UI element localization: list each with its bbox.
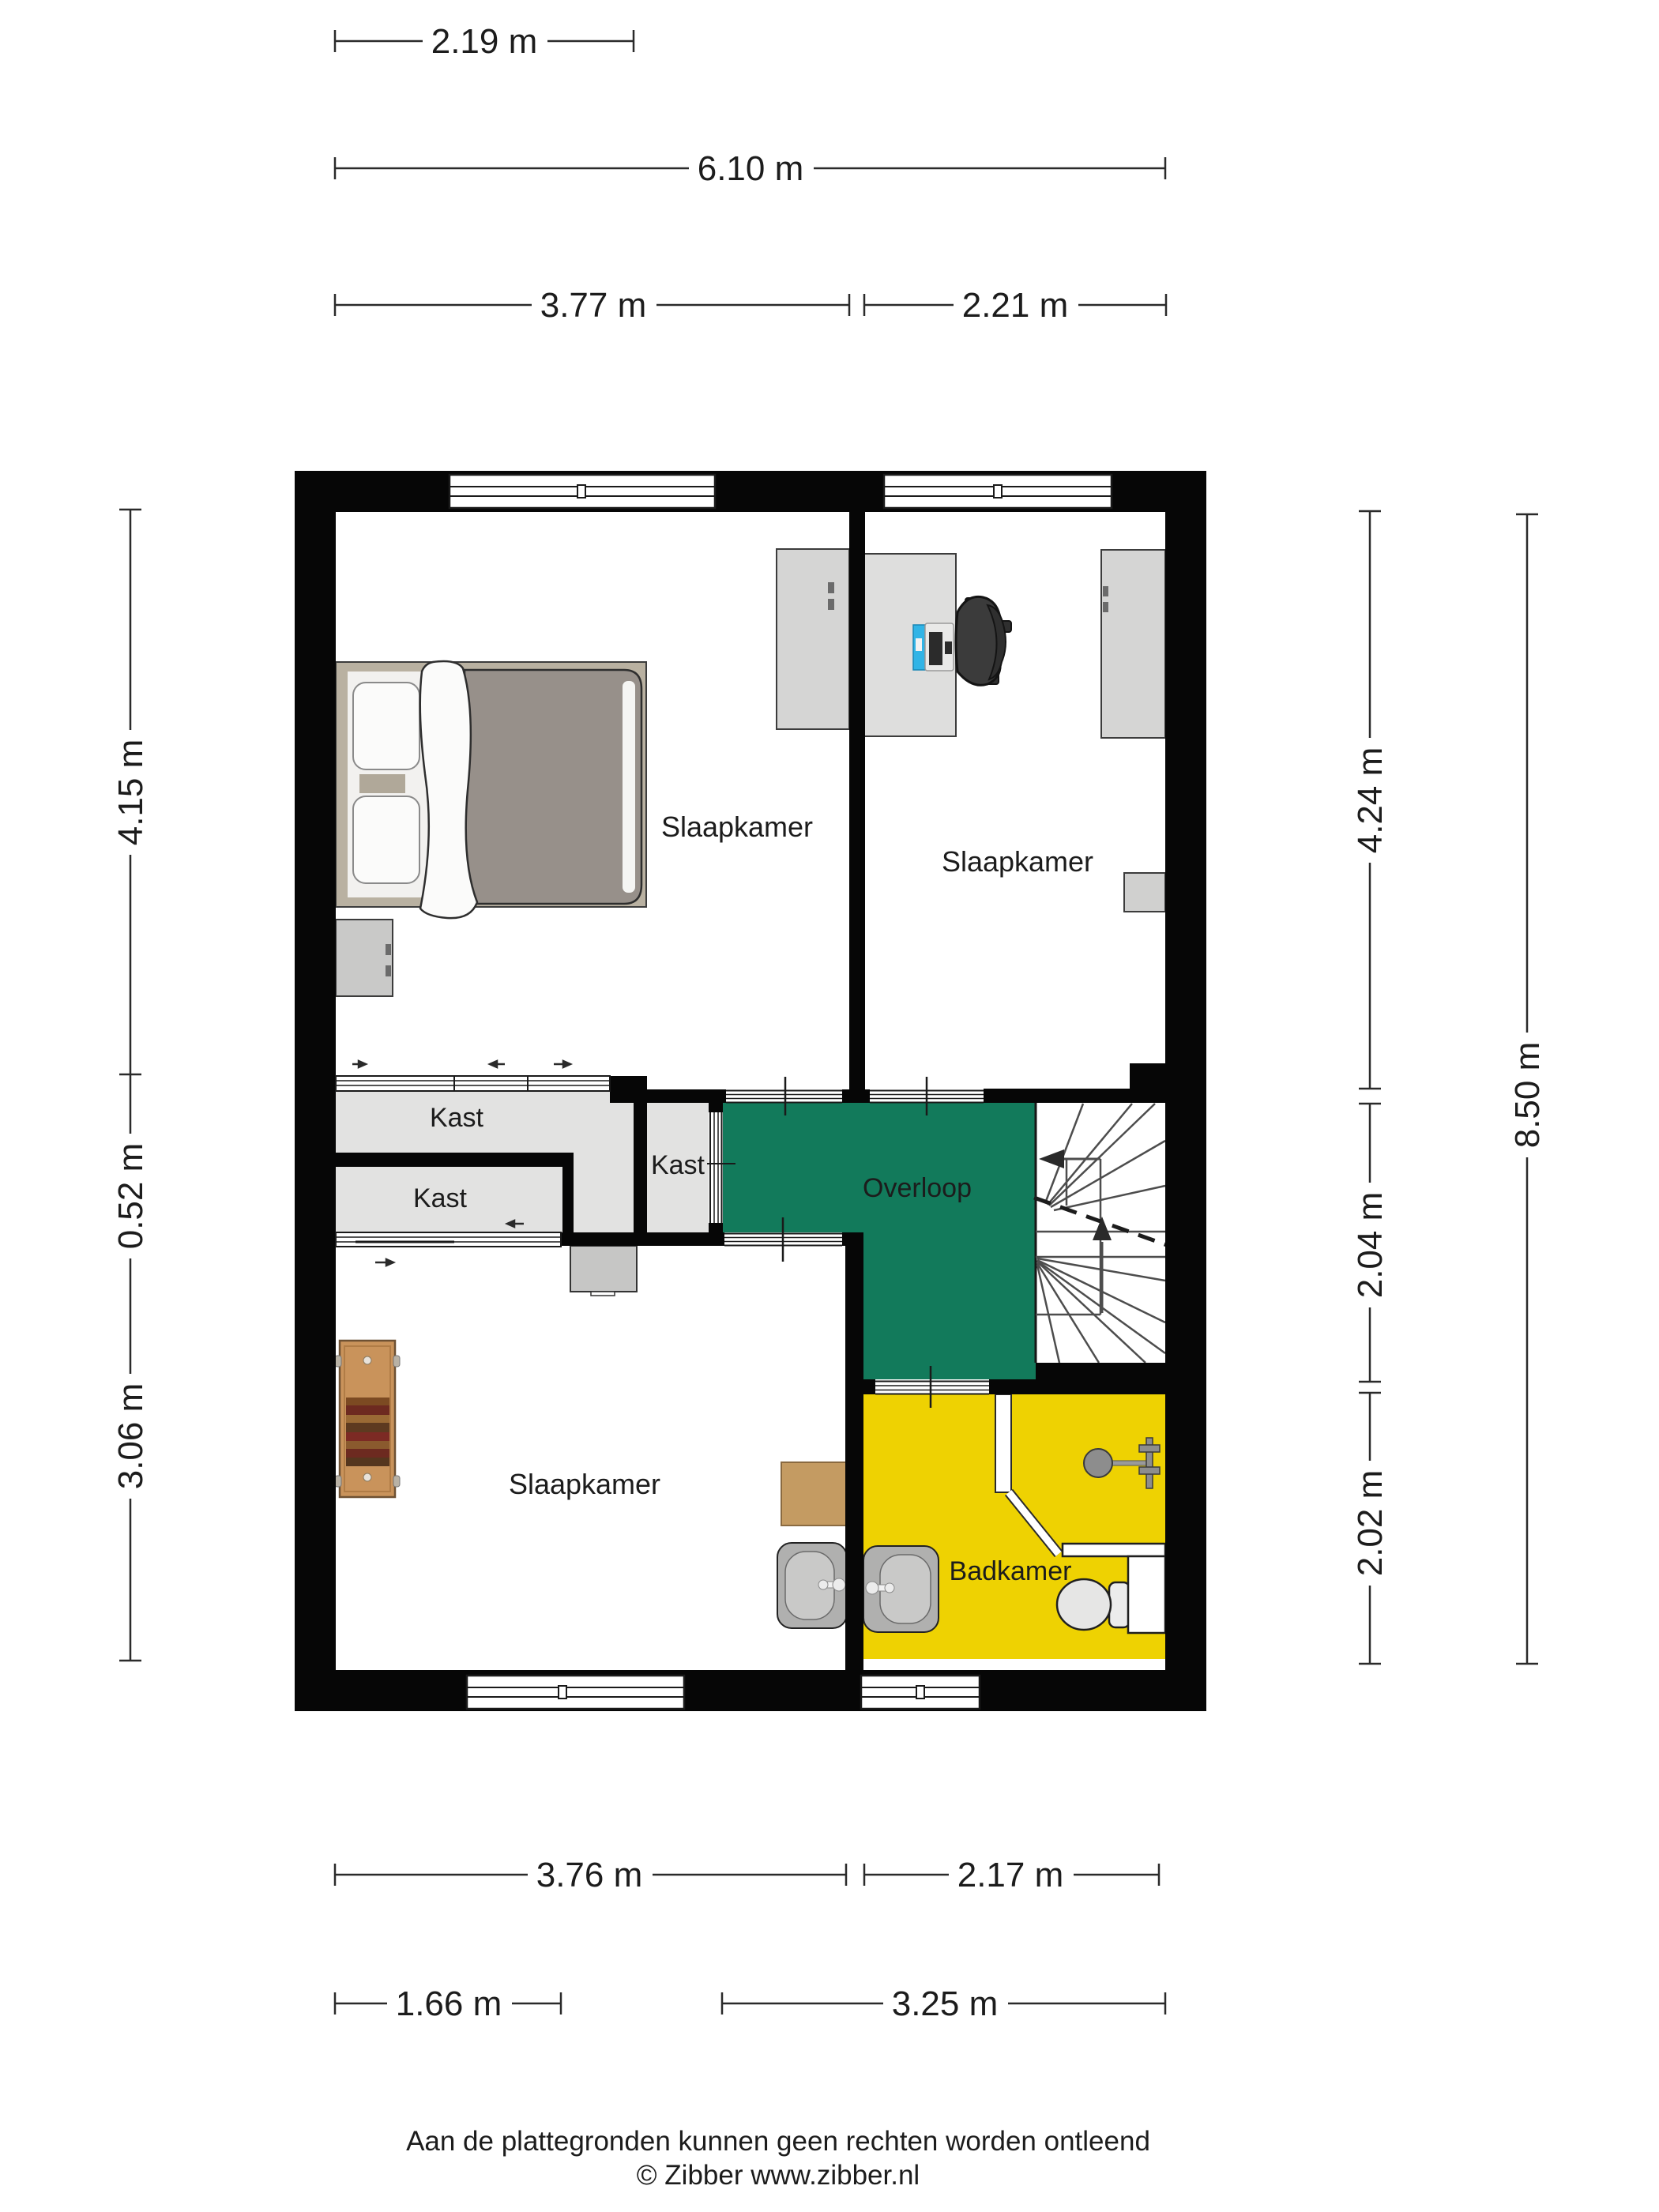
svg-text:Kast: Kast bbox=[430, 1103, 484, 1133]
svg-text:Slaapkamer: Slaapkamer bbox=[942, 845, 1093, 878]
svg-text:2.04 m: 2.04 m bbox=[1351, 1192, 1390, 1299]
svg-text:© Zibber www.zibber.nl: © Zibber www.zibber.nl bbox=[637, 2160, 920, 2191]
svg-text:Overloop: Overloop bbox=[863, 1173, 972, 1203]
svg-text:3.77 m: 3.77 m bbox=[540, 286, 647, 325]
svg-text:Kast: Kast bbox=[413, 1183, 468, 1213]
svg-text:6.10 m: 6.10 m bbox=[698, 149, 804, 188]
svg-text:8.50 m: 8.50 m bbox=[1508, 1042, 1547, 1149]
svg-text:2.19 m: 2.19 m bbox=[431, 22, 538, 61]
svg-text:2.21 m: 2.21 m bbox=[962, 286, 1069, 325]
svg-text:Kast: Kast bbox=[651, 1150, 705, 1180]
svg-text:2.17 m: 2.17 m bbox=[957, 1856, 1064, 1894]
svg-text:1.66 m: 1.66 m bbox=[396, 1984, 502, 2023]
svg-text:4.15 m: 4.15 m bbox=[111, 739, 150, 846]
svg-text:4.24 m: 4.24 m bbox=[1351, 747, 1390, 854]
svg-text:Aan de plattegronden kunnen ge: Aan de plattegronden kunnen geen rechten… bbox=[406, 2126, 1150, 2157]
svg-text:3.06 m: 3.06 m bbox=[111, 1383, 150, 1490]
svg-text:Badkamer: Badkamer bbox=[950, 1556, 1072, 1586]
svg-text:0.52 m: 0.52 m bbox=[111, 1143, 150, 1250]
svg-text:3.76 m: 3.76 m bbox=[536, 1856, 643, 1894]
svg-text:Slaapkamer: Slaapkamer bbox=[661, 811, 813, 843]
svg-text:Slaapkamer: Slaapkamer bbox=[509, 1468, 660, 1500]
svg-text:3.25 m: 3.25 m bbox=[892, 1984, 999, 2023]
svg-text:2.02 m: 2.02 m bbox=[1351, 1470, 1390, 1577]
